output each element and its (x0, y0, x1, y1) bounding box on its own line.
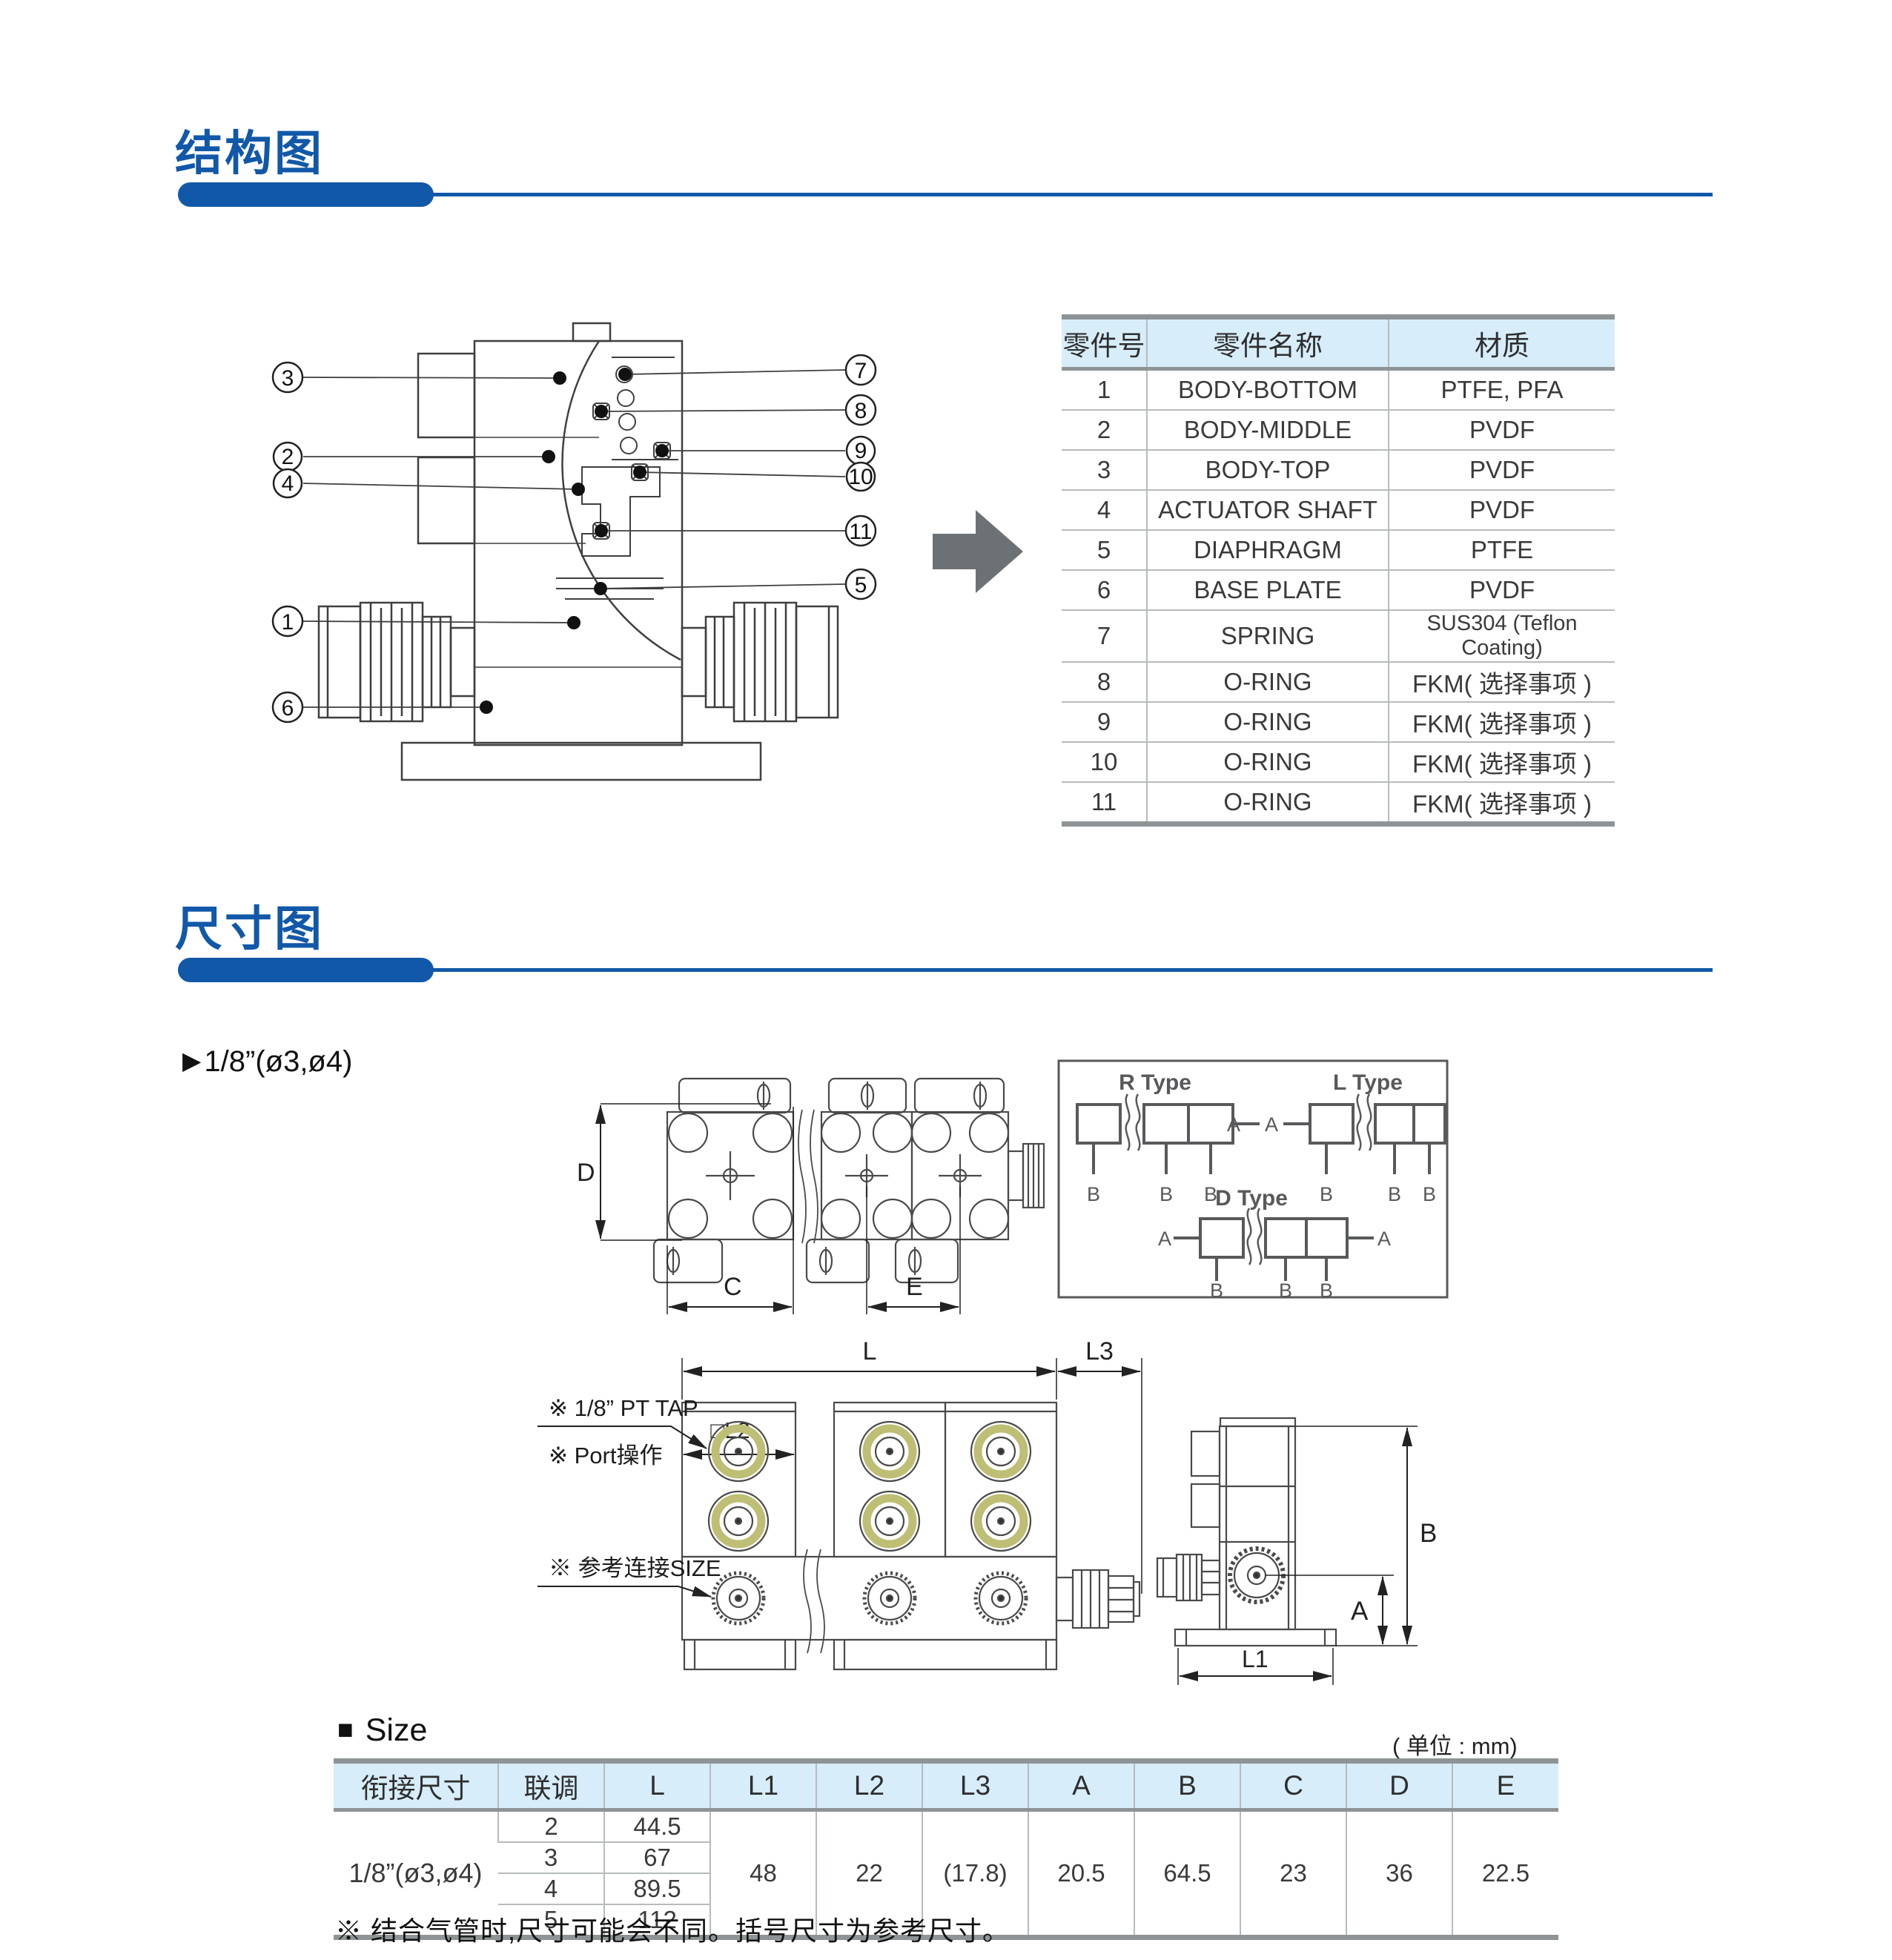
dim-l1-label: L1 (1242, 1646, 1268, 1672)
side-view-drawing: B A L1 (1127, 1353, 1512, 1709)
table-row: 10 O-RING FKM( 选择事项 ) (1062, 742, 1615, 782)
port-b-label: B (1204, 1183, 1217, 1205)
size-variant-label: ▶1/8”(ø3,ø4) (182, 1045, 352, 1079)
callout-5: 5 (855, 573, 867, 597)
ref-size-note: ※ 参考连接SIZE (549, 1555, 721, 1581)
size-title-text: Size (365, 1712, 428, 1748)
size-table-header-row: 衔接尺寸 联调 L L1 L2 L3 A B C D E (334, 1761, 1558, 1810)
port-b-label: B (1320, 1279, 1333, 1300)
port-type-box: R Type L Type D Type A A B B B B B B A A… (1056, 1059, 1449, 1300)
dimension-section-rule (178, 958, 1713, 984)
top-view-drawing: D C E (541, 1056, 1045, 1345)
table-row: 5 DIAPHRAGM PTFE (1062, 530, 1615, 570)
base-plate (402, 743, 761, 780)
callout-4: 4 (282, 471, 294, 496)
size-footnote: ※ 结合气管时,尺寸可能会不同。括号尺寸为参考尺寸。 (335, 1910, 1010, 1948)
callout-10: 10 (848, 465, 873, 489)
size-table-title: ■Size (337, 1712, 427, 1749)
feet (684, 1640, 1056, 1669)
table-row: 3 BODY-TOP PVDF (1062, 450, 1615, 490)
callout-6: 6 (282, 696, 294, 721)
port-b-label: B (1320, 1183, 1333, 1205)
d-type-diagram (1174, 1208, 1374, 1281)
port-a-label: A (1377, 1228, 1391, 1250)
callout-8: 8 (855, 399, 867, 423)
table-row: 8 O-RING FKM( 选择事项 ) (1062, 662, 1615, 702)
port-op-note: ※ Port操作 (549, 1443, 662, 1469)
port-b-label: B (1160, 1183, 1173, 1205)
pointer-icon: ▶ (182, 1047, 201, 1074)
col-part-name: 零件名称 (1147, 317, 1389, 369)
front-view-drawing: L L3 □L2 (315, 1327, 1160, 1698)
table-row: 7 SPRING SUS304 (Teflon Coating) (1062, 610, 1615, 662)
dim-b-label: B (1420, 1519, 1437, 1548)
r-type-label: R Type (1119, 1070, 1191, 1095)
rule-thick-bar (178, 958, 434, 982)
callout-11: 11 (849, 520, 872, 544)
rule-thin-line (426, 193, 1713, 196)
l-type-diagram (1283, 1094, 1445, 1174)
table-row: 11 O-RING FKM( 选择事项 ) (1062, 782, 1615, 824)
side-connector-left (1157, 1555, 1220, 1600)
dim-a-label: A (1351, 1597, 1369, 1626)
valve-side-profile (1157, 1418, 1336, 1646)
rule-thick-bar (178, 182, 434, 207)
table-row: 1 BODY-BOTTOM PTFE, PFA (1062, 369, 1615, 411)
pt-tap-note: ※ 1/8” PT TAP (549, 1395, 698, 1421)
valve-units-top (654, 1079, 1044, 1282)
valve-body (418, 323, 682, 745)
top-ports (709, 1422, 1031, 1551)
d-type-label: D Type (1215, 1186, 1288, 1211)
dim-l3-label: L3 (1085, 1337, 1114, 1365)
structure-section-rule (178, 182, 1713, 209)
dim-c-label: C (724, 1273, 742, 1301)
rule-thin-line (426, 968, 1713, 972)
structure-section-title: 结构图 (175, 116, 324, 184)
union-nut-right (682, 603, 838, 721)
front-annotations: ※ 1/8” PT TAP ※ Port操作 ※ 参考连接SIZE (537, 1395, 721, 1597)
table-row: 1/8”(ø3,ø4) 2 44.5 48 22 (17.8) 20.5 64.… (334, 1810, 1558, 1843)
col-part-no: 零件号 (1062, 317, 1147, 369)
callout-9: 9 (855, 439, 867, 463)
actuator-shaft (582, 467, 660, 556)
table-row: 4 ACTUATOR SHAFT PVDF (1062, 490, 1615, 530)
port-b-label: B (1388, 1183, 1401, 1205)
col-material: 材质 (1389, 317, 1615, 369)
unit-label: ( 单位 : mm) (1392, 1727, 1518, 1761)
port-b-label: B (1087, 1183, 1100, 1205)
port-a-label: A (1158, 1228, 1171, 1250)
callout-2: 2 (282, 445, 294, 469)
variant-text: 1/8”(ø3,ø4) (204, 1045, 352, 1078)
dimension-section-title: 尺寸图 (175, 891, 324, 959)
table-row: 6 BASE PLATE PVDF (1062, 570, 1615, 610)
parts-table-header-row: 零件号 零件名称 材质 (1062, 317, 1615, 369)
parts-table: 零件号 零件名称 材质 1 BODY-BOTTOM PTFE, PFA 2 BO… (1062, 314, 1615, 827)
leader-lines (303, 370, 845, 707)
port-a-label: A (1265, 1113, 1278, 1136)
dim-l-label: L (863, 1337, 877, 1365)
table-row: 9 O-RING FKM( 选择事项 ) (1062, 702, 1615, 742)
pointer-arrow-icon (933, 510, 1029, 595)
structure-cross-section-diagram: 3 2 4 1 6 7 8 9 10 11 5 (245, 311, 897, 801)
catalog-page: 结构图 (0, 0, 1892, 1960)
port-b-label: B (1210, 1279, 1223, 1300)
port-b-label: B (1279, 1279, 1292, 1300)
table-row: 2 BODY-MIDDLE PVDF (1062, 410, 1615, 450)
callout-3: 3 (282, 366, 294, 391)
bottom-ports (713, 1573, 1026, 1623)
l-type-label: L Type (1333, 1070, 1403, 1095)
square-bullet-icon: ■ (337, 1714, 354, 1744)
leader-dots (480, 368, 669, 714)
union-nut-left (319, 603, 474, 721)
callout-7: 7 (855, 359, 867, 383)
dim-d-label: D (577, 1159, 595, 1187)
manifold-front (682, 1403, 1139, 1669)
dim-e-label: E (906, 1273, 923, 1301)
port-b-label: B (1423, 1183, 1436, 1205)
callout-1: 1 (282, 610, 294, 635)
port-a-label: A (1227, 1113, 1240, 1136)
